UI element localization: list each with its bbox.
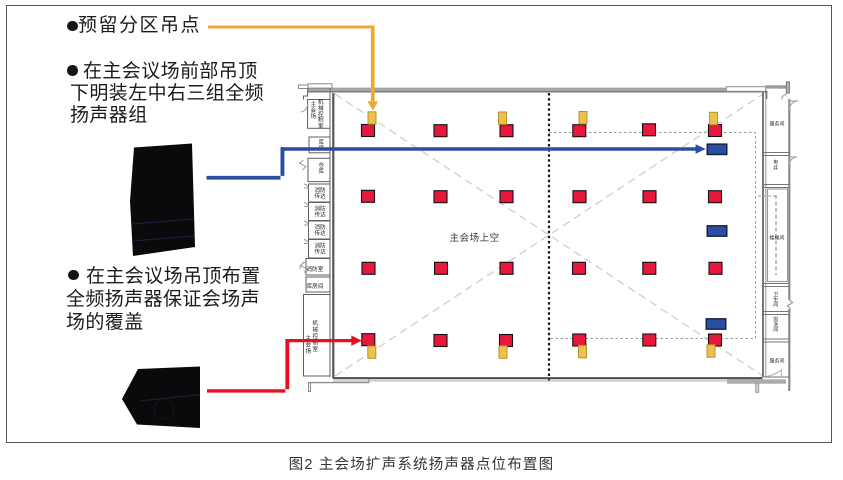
svg-text:消防传达: 消防传达 <box>315 242 327 256</box>
svg-text:电井: 电井 <box>773 159 778 171</box>
svg-text:仓库: 仓库 <box>319 161 325 175</box>
svg-text:机械控制室: 机械控制室 <box>318 98 324 130</box>
svg-text:主会场上空: 主会场上空 <box>450 232 500 244</box>
svg-text:服务间: 服务间 <box>770 358 785 365</box>
svg-text:机械控制室: 机械控制室 <box>313 319 319 353</box>
svg-text:服务间: 服务间 <box>770 121 785 128</box>
svg-text:消防传达: 消防传达 <box>315 223 327 237</box>
svg-text:卫生间: 卫生间 <box>773 292 778 309</box>
svg-text:消防传达: 消防传达 <box>315 205 327 219</box>
svg-text:楼梯间: 楼梯间 <box>770 235 785 242</box>
svg-text:消防传达: 消防传达 <box>315 186 327 200</box>
svg-text:盥洗间: 盥洗间 <box>773 316 778 334</box>
svg-text:消防室: 消防室 <box>307 265 324 273</box>
svg-text:主会场: 主会场 <box>311 100 317 120</box>
svg-text:库房间: 库房间 <box>307 282 324 290</box>
svg-text:主会场: 主会场 <box>306 334 312 355</box>
